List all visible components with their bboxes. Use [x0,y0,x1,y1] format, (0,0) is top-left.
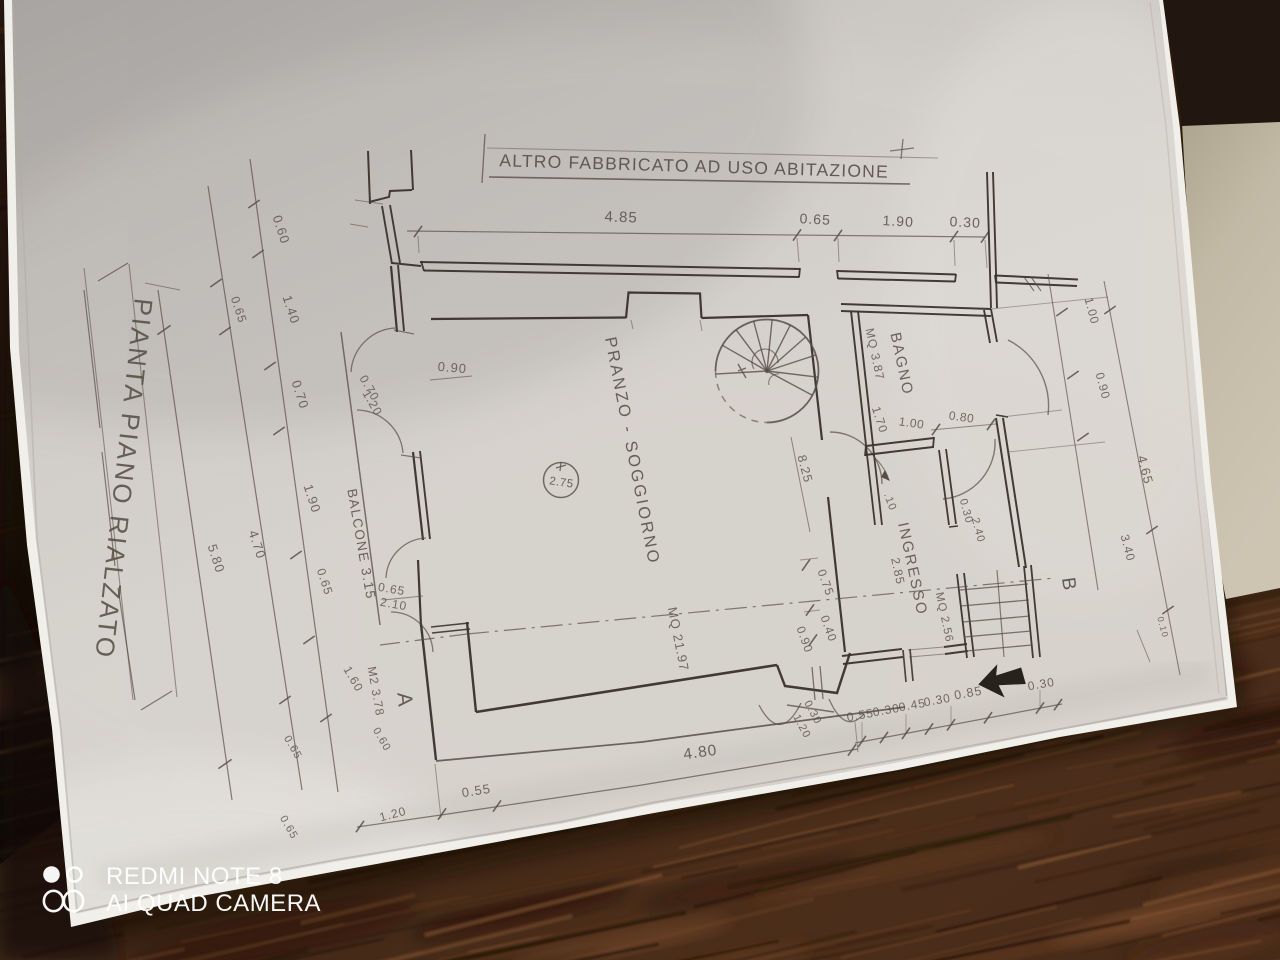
svg-text:4.85: 4.85 [604,208,638,226]
svg-text:0.30: 0.30 [949,213,981,231]
svg-text:AI QUAD CAMERA: AI QUAD CAMERA [106,890,321,917]
svg-text:B: B [1057,576,1080,592]
svg-text:0.65: 0.65 [799,210,831,228]
svg-text:0.90: 0.90 [437,359,468,376]
svg-text:A: A [392,691,416,707]
svg-text:1.90: 1.90 [882,212,914,230]
svg-text:REDMI NOTE 8: REDMI NOTE 8 [106,863,283,890]
